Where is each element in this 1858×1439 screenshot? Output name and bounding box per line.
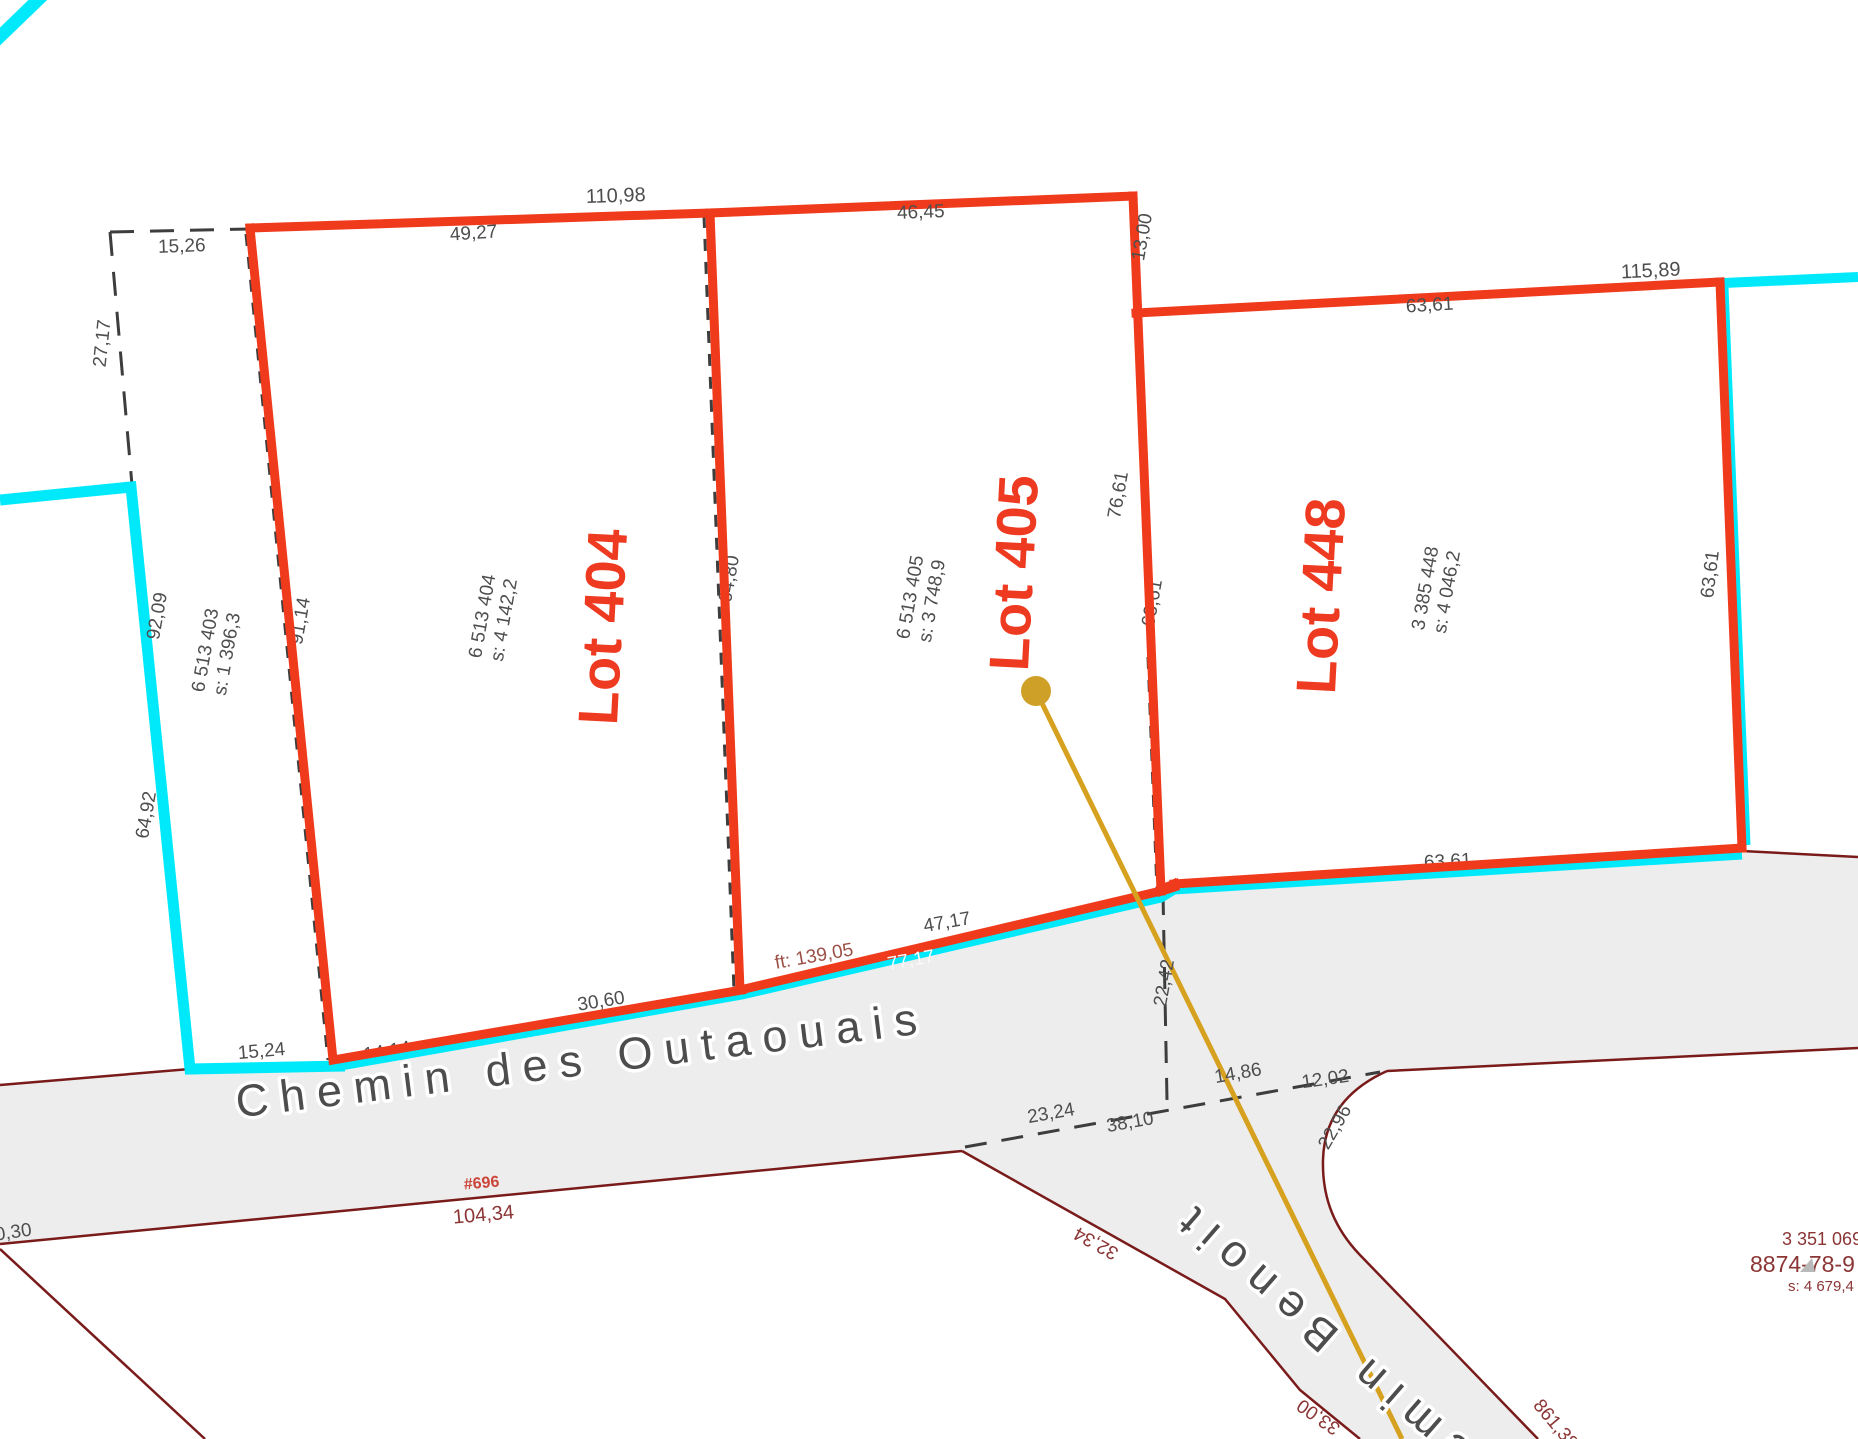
svg-text:Lot 404: Lot 404 xyxy=(566,527,639,726)
svg-text:15,24: 15,24 xyxy=(237,1039,287,1064)
svg-text:63,61: 63,61 xyxy=(1405,294,1454,318)
svg-text:Lot 405: Lot 405 xyxy=(977,473,1050,672)
svg-text:Lot 448: Lot 448 xyxy=(1284,496,1357,695)
svg-text:46,45: 46,45 xyxy=(897,201,945,224)
svg-text:110,98: 110,98 xyxy=(586,184,646,208)
svg-text:#696: #696 xyxy=(463,1173,500,1193)
svg-text:49,27: 49,27 xyxy=(449,221,498,245)
svg-text:115,89: 115,89 xyxy=(1620,258,1681,283)
svg-text:15,26: 15,26 xyxy=(158,235,206,258)
svg-text:8874-78-9: 8874-78-9 xyxy=(1750,1251,1855,1277)
svg-text:3 351 069: 3 351 069 xyxy=(1782,1229,1858,1249)
svg-text:s: 4 679,4: s: 4 679,4 xyxy=(1788,1278,1854,1295)
